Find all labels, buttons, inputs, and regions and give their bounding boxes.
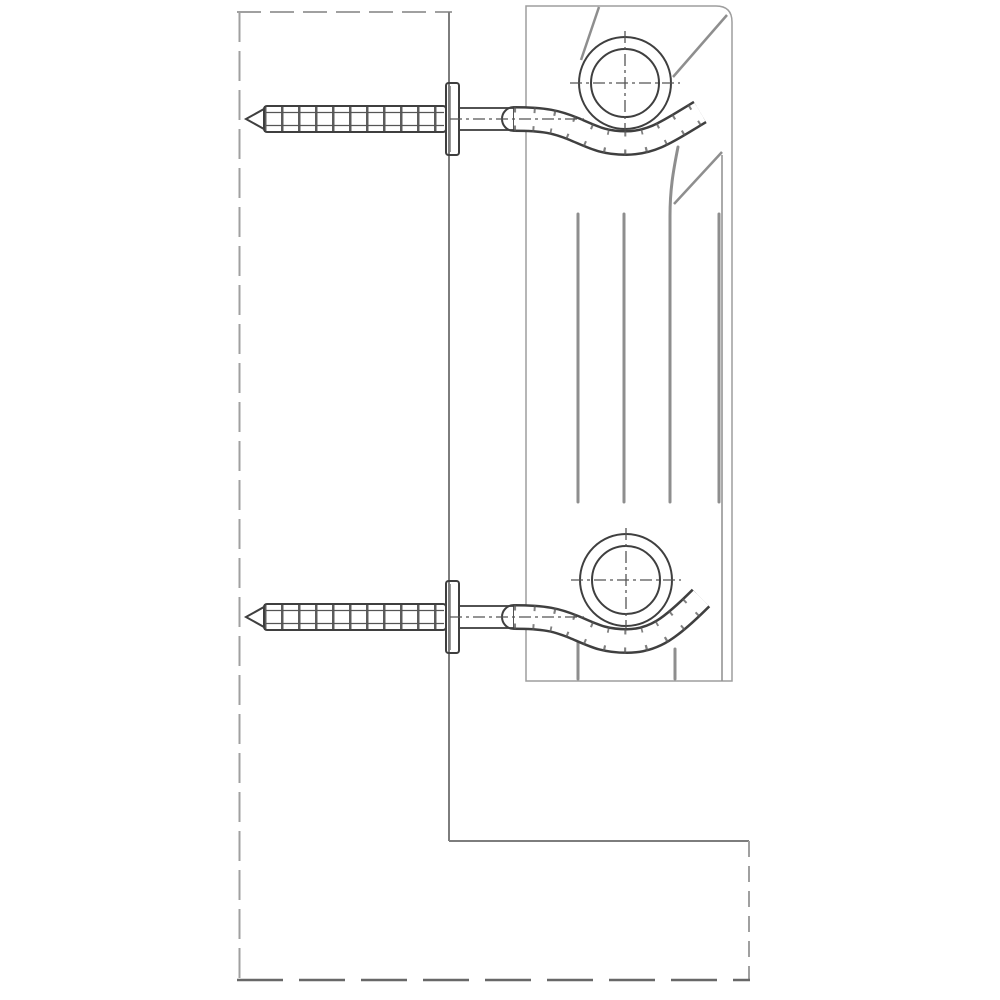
bottom-anchor-hook-bracket	[246, 581, 701, 653]
screw-tip	[246, 607, 264, 627]
radiator-mounting-diagram	[0, 0, 1000, 1000]
letterbox-left-bar	[0, 0, 228, 1000]
letterbox	[0, 0, 1000, 1000]
wall-cross-section	[237, 12, 750, 980]
radiator-right-shade	[722, 155, 732, 681]
letterbox-right-bar	[780, 0, 1000, 1000]
top-notch-right-edge	[673, 15, 727, 77]
top-anchor-hook-bracket	[246, 83, 700, 155]
letterbox-right-seam	[776, 0, 780, 1000]
top-right-rib-diagonal	[674, 152, 722, 204]
screw-tip	[246, 109, 264, 129]
wall-hatch-fill	[237, 12, 750, 980]
letterbox-left-seam	[228, 0, 232, 1000]
diagram-canvas	[0, 0, 1000, 1000]
